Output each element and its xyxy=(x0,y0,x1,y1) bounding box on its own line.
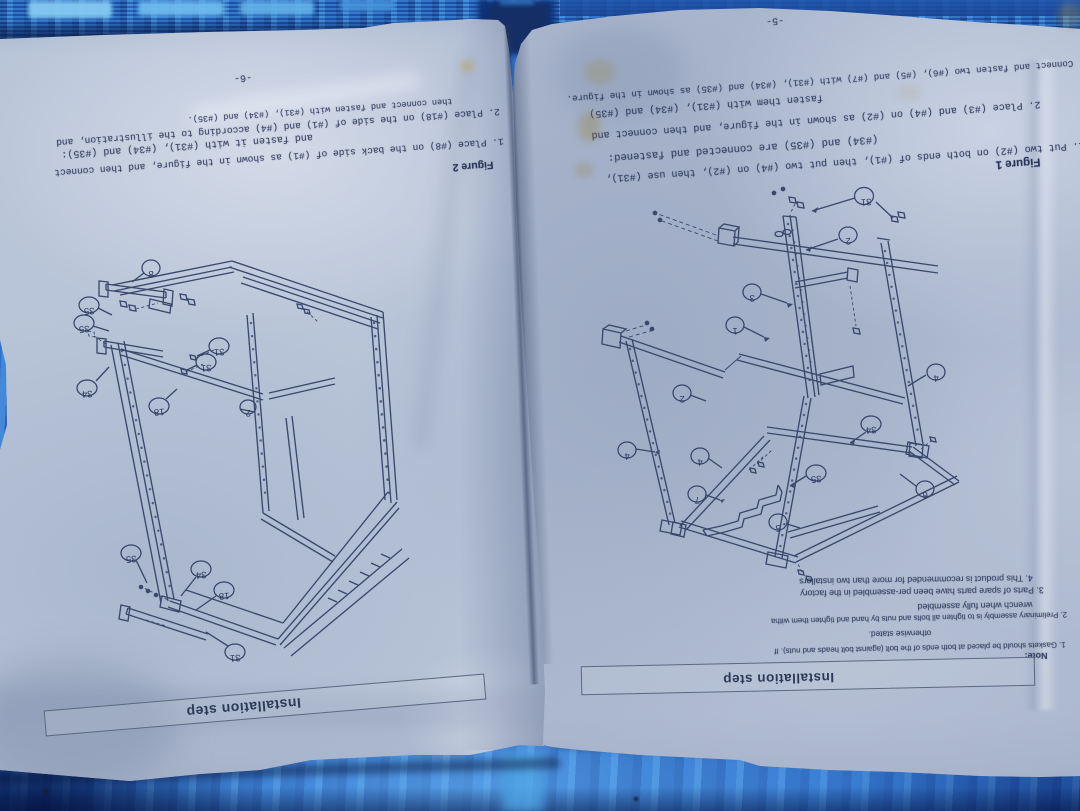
svg-text:34: 34 xyxy=(196,569,207,581)
svg-text:31: 31 xyxy=(201,362,212,374)
svg-text:31: 31 xyxy=(214,346,225,358)
svg-text:35: 35 xyxy=(811,473,822,485)
svg-text:4: 4 xyxy=(933,372,939,383)
svg-text:35: 35 xyxy=(126,553,137,565)
svg-text:6: 6 xyxy=(922,489,928,500)
svg-text:34: 34 xyxy=(82,388,93,400)
svg-text:8: 8 xyxy=(148,268,154,279)
svg-text:18: 18 xyxy=(219,590,230,602)
svg-text:5: 5 xyxy=(775,522,781,533)
svg-text:1: 1 xyxy=(732,325,738,336)
svg-text:3: 3 xyxy=(749,292,755,303)
svg-text:4: 4 xyxy=(624,450,630,461)
svg-text:2: 2 xyxy=(679,393,685,404)
svg-text:34: 34 xyxy=(866,424,877,436)
svg-text:2: 2 xyxy=(245,407,251,418)
svg-text:4: 4 xyxy=(697,456,703,467)
svg-text:35: 35 xyxy=(84,305,95,317)
svg-text:31: 31 xyxy=(230,652,241,664)
svg-text:2: 2 xyxy=(845,235,851,246)
svg-text:31: 31 xyxy=(861,196,872,208)
svg-text:35: 35 xyxy=(79,323,90,335)
svg-text:7: 7 xyxy=(694,494,700,505)
svg-text:18: 18 xyxy=(154,406,165,418)
